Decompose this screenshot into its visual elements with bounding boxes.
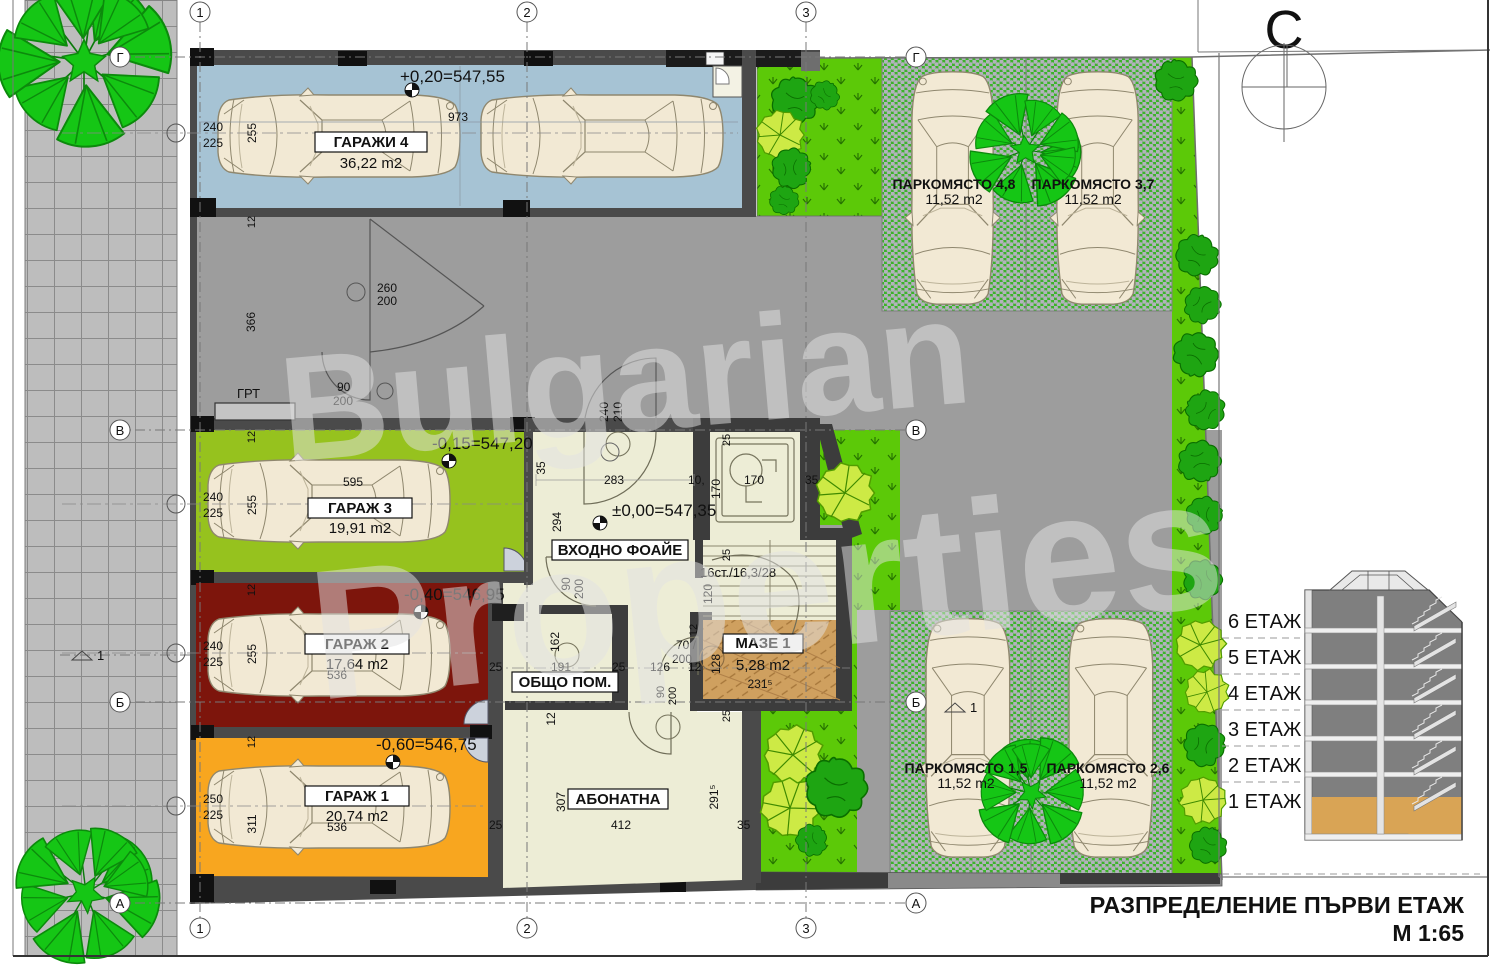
svg-text:170: 170 [744, 473, 764, 487]
svg-text:225: 225 [203, 808, 223, 822]
svg-text:5 ЕТАЖ: 5 ЕТАЖ [1228, 647, 1302, 669]
svg-text:+0,20=547,55: +0,20=547,55 [400, 67, 505, 86]
svg-text:240: 240 [203, 639, 223, 653]
svg-text:4 ЕТАЖ: 4 ЕТАЖ [1228, 683, 1302, 705]
svg-text:225: 225 [203, 506, 223, 520]
svg-text:Б: Б [116, 695, 125, 710]
svg-text:В: В [116, 423, 125, 438]
svg-text:2 ЕТАЖ: 2 ЕТАЖ [1228, 755, 1302, 777]
svg-text:1 ЕТАЖ: 1 ЕТАЖ [1228, 791, 1302, 813]
svg-text:1: 1 [196, 921, 203, 936]
svg-text:366: 366 [244, 312, 258, 332]
svg-text:-0,60=546,75: -0,60=546,75 [376, 735, 477, 754]
svg-text:ГАРАЖ 3: ГАРАЖ 3 [328, 500, 392, 517]
svg-text:260: 260 [377, 281, 397, 295]
svg-text:ПАРКОМЯСТО 1,5: ПАРКОМЯСТО 1,5 [905, 760, 1028, 776]
svg-text:М 1:65: М 1:65 [1392, 920, 1464, 946]
svg-text:12: 12 [246, 584, 258, 596]
svg-text:ГАРАЖ 1: ГАРАЖ 1 [325, 788, 389, 805]
svg-text:2: 2 [523, 5, 530, 20]
svg-text:240: 240 [203, 120, 223, 134]
svg-text:973: 973 [448, 110, 468, 124]
svg-text:10,: 10, [688, 473, 705, 487]
svg-text:255: 255 [245, 495, 259, 515]
svg-text:АБОНАТНА: АБОНАТНА [575, 791, 660, 808]
svg-text:311: 311 [245, 814, 259, 833]
svg-text:РАЗПРЕДЕЛЕНИЕ ПЪРВИ ЕТАЖ: РАЗПРЕДЕЛЕНИЕ ПЪРВИ ЕТАЖ [1090, 892, 1465, 918]
svg-text:А: А [116, 896, 125, 911]
svg-text:2: 2 [523, 921, 530, 936]
svg-text:1: 1 [970, 700, 977, 715]
svg-text:283: 283 [604, 473, 624, 487]
svg-text:3 ЕТАЖ: 3 ЕТАЖ [1228, 719, 1302, 741]
svg-text:250: 250 [203, 792, 223, 806]
svg-text:Г: Г [116, 50, 123, 65]
svg-text:1: 1 [196, 5, 203, 20]
svg-text:Г: Г [912, 50, 919, 65]
svg-text:36,22 m2: 36,22 m2 [340, 155, 403, 172]
svg-text:12: 12 [246, 736, 258, 748]
svg-text:225: 225 [203, 136, 223, 150]
svg-text:240: 240 [203, 490, 223, 504]
svg-text:35: 35 [737, 818, 751, 832]
svg-text:ПАРКОМЯСТО 2,6: ПАРКОМЯСТО 2,6 [1047, 760, 1170, 776]
svg-text:291⁵: 291⁵ [707, 784, 721, 809]
svg-text:200: 200 [377, 294, 397, 308]
svg-text:ПАРКОМЯСТО 3,7: ПАРКОМЯСТО 3,7 [1032, 176, 1155, 192]
svg-text:536: 536 [327, 820, 347, 834]
svg-text:Б: Б [912, 695, 921, 710]
svg-text:12: 12 [246, 431, 258, 443]
svg-text:11,52 m2: 11,52 m2 [937, 775, 995, 791]
svg-text:3: 3 [802, 921, 809, 936]
svg-text:6 ЕТАЖ: 6 ЕТАЖ [1228, 611, 1302, 633]
svg-text:11,52 m2: 11,52 m2 [925, 191, 983, 207]
svg-text:ПАРКОМЯСТО 4,8: ПАРКОМЯСТО 4,8 [893, 176, 1016, 192]
svg-text:1: 1 [97, 648, 104, 663]
svg-text:А: А [912, 896, 921, 911]
svg-text:12: 12 [246, 216, 258, 228]
svg-text:11,52 m2: 11,52 m2 [1079, 775, 1137, 791]
svg-text:11,52 m2: 11,52 m2 [1064, 191, 1122, 207]
svg-text:25: 25 [489, 818, 503, 832]
svg-text:412: 412 [611, 818, 631, 832]
svg-text:ГАРАЖИ 4: ГАРАЖИ 4 [334, 134, 409, 151]
svg-text:255: 255 [245, 644, 259, 664]
svg-text:255: 255 [245, 123, 259, 143]
svg-text:ГРТ: ГРТ [237, 386, 260, 401]
svg-text:3: 3 [802, 5, 809, 20]
svg-text:307: 307 [554, 792, 568, 812]
svg-text:225: 225 [203, 655, 223, 669]
svg-text:25: 25 [721, 710, 733, 722]
